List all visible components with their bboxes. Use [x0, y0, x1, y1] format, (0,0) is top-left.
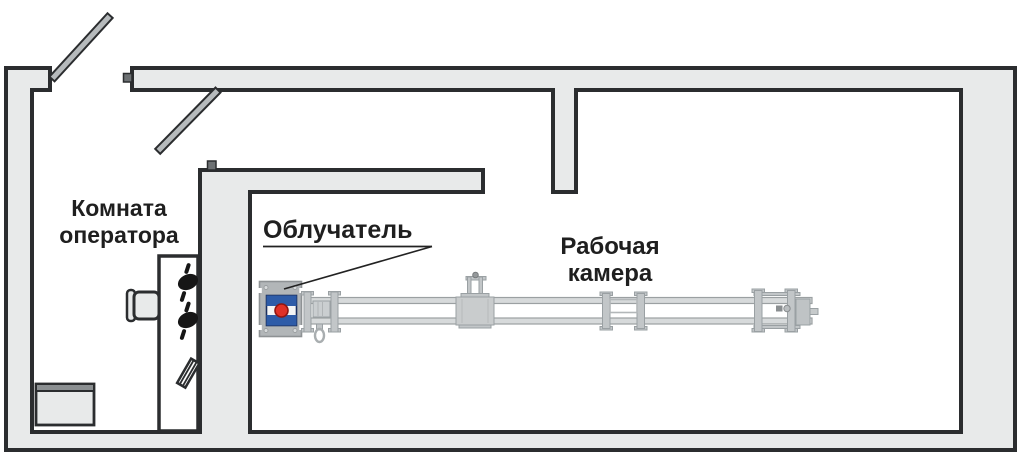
rail-top: [306, 298, 812, 304]
bracket-pin: [473, 272, 479, 278]
end-assembly: [752, 289, 818, 332]
irradiator-label: Облучатель: [263, 216, 413, 244]
floor-plan-canvas: Облучатель Комната оператора Рабочая кам…: [0, 0, 1024, 455]
working-chamber-label-line2: камера: [568, 260, 653, 287]
carriage-hook-ring: [315, 329, 324, 342]
maze-wall-latch: [208, 161, 217, 170]
cabinet: [36, 384, 94, 425]
irradiator-leader-line: [284, 247, 432, 290]
operator-room-label-line1: Комната: [71, 195, 167, 221]
working-chamber-label-line1: Рабочая: [560, 233, 659, 260]
operator-chair: [127, 290, 159, 321]
operator-console: [159, 256, 201, 431]
operator-room-label-line2: оператора: [59, 222, 179, 248]
operator-room-label: Комната оператора: [59, 195, 179, 248]
working-chamber-label: Рабочая камера: [560, 233, 659, 287]
conveyor-line: [302, 272, 819, 342]
end-block: [796, 299, 810, 325]
irradiator-device: [258, 282, 304, 337]
rail-bottom: [306, 318, 812, 324]
floor-plan: Облучатель Комната оператора Рабочая кам…: [0, 0, 1024, 455]
irradiator-annotation: Облучатель: [263, 216, 432, 289]
corridor-door-leaf: [155, 88, 220, 154]
carriage-middle: [456, 272, 494, 328]
entrance-door-leaf: [49, 13, 112, 81]
source-indicator: [275, 304, 288, 317]
entrance-door-latch: [124, 74, 133, 83]
